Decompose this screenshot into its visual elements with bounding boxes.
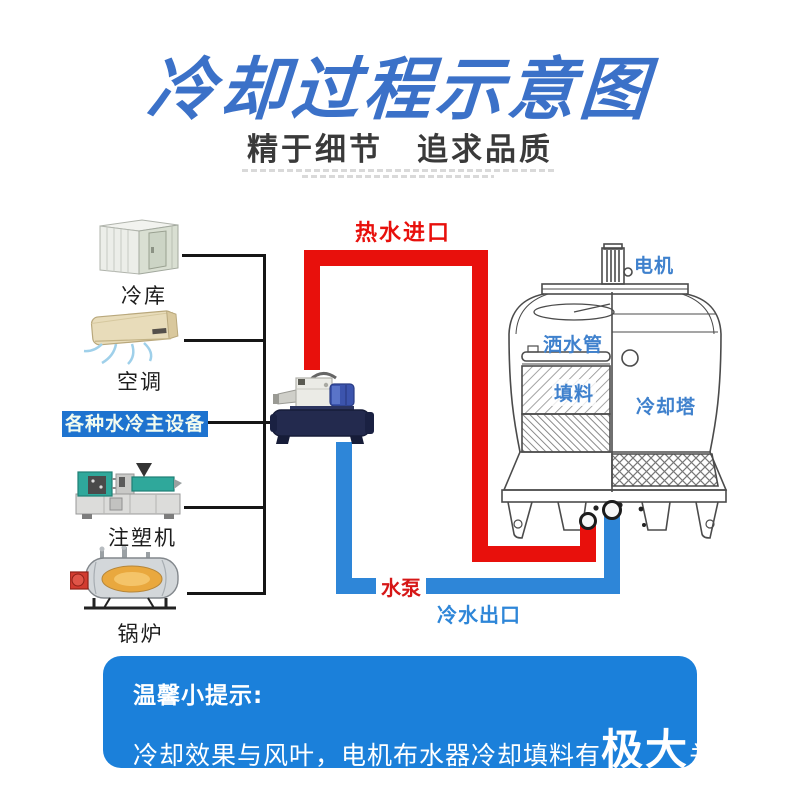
boiler-image: [70, 546, 188, 614]
subtitle-right: 追求品质: [417, 132, 553, 168]
cooling-process-infographic: 冷却过程示意图 精于细节追求品质: [0, 0, 800, 800]
hot-pipe-chiller-riser: [304, 250, 320, 370]
cold-pipe-valve-icon: [602, 500, 622, 520]
label-water-pump: 水泵: [376, 572, 426, 601]
label-motor: 电机: [634, 251, 674, 278]
group-label-water-cooled-equipment: 各种水冷主设备: [62, 411, 208, 437]
page-title: 冷却过程示意图: [0, 34, 800, 133]
connector-boiler-line: [187, 592, 266, 595]
subtitle-left: 精于细节: [247, 132, 383, 168]
tip-body-prefix: 冷却效果与风叶，电机布水器冷却填料有: [133, 741, 601, 770]
label-sprinkler-pipe: 洒水管: [543, 330, 603, 357]
injection-molding-machine-image: [72, 460, 187, 522]
label-cold-storage: 冷库: [94, 280, 194, 310]
hot-pipe-bottom-run: [472, 546, 596, 562]
cold-pipe-tower-riser: [604, 508, 620, 594]
hot-pipe-downcomer: [472, 250, 488, 562]
watermark-line: [242, 169, 554, 172]
cold-pipe-chiller-drop: [336, 442, 352, 594]
label-air-conditioner: 空调: [90, 366, 190, 396]
tip-heading: 温馨小提示:: [133, 676, 697, 710]
label-injection-molding-machine: 注塑机: [85, 522, 200, 552]
label-filler: 填料: [552, 379, 596, 406]
label-cooling-tower: 冷却塔: [636, 392, 696, 419]
label-hot-water-inlet: 热水进口: [355, 215, 451, 247]
chiller-unit-image: [270, 366, 374, 446]
hot-pipe-valve-icon: [579, 512, 597, 530]
label-boiler: 锅炉: [88, 618, 193, 648]
connector-trunk-line: [263, 254, 266, 595]
label-cold-water-outlet: 冷水出口: [437, 599, 521, 628]
tip-body-suffix: 关系: [689, 741, 741, 770]
page-subtitle: 精于细节追求品质: [0, 124, 800, 169]
tip-body: 冷却效果与风叶，电机布水器冷却填料有极大关系: [133, 716, 697, 777]
connector-molding-line: [184, 506, 266, 509]
tip-body-emphasis: 极大: [601, 725, 689, 774]
connector-group-line: [205, 421, 280, 424]
cold-storage-image: [92, 216, 184, 278]
tip-box: 温馨小提示: 冷却效果与风叶，电机布水器冷却填料有极大关系: [103, 656, 697, 768]
connector-coldroom-line: [182, 254, 266, 257]
watermark-line: [302, 175, 494, 178]
connector-ac-line: [184, 339, 266, 342]
hot-pipe-top-run: [304, 250, 488, 266]
